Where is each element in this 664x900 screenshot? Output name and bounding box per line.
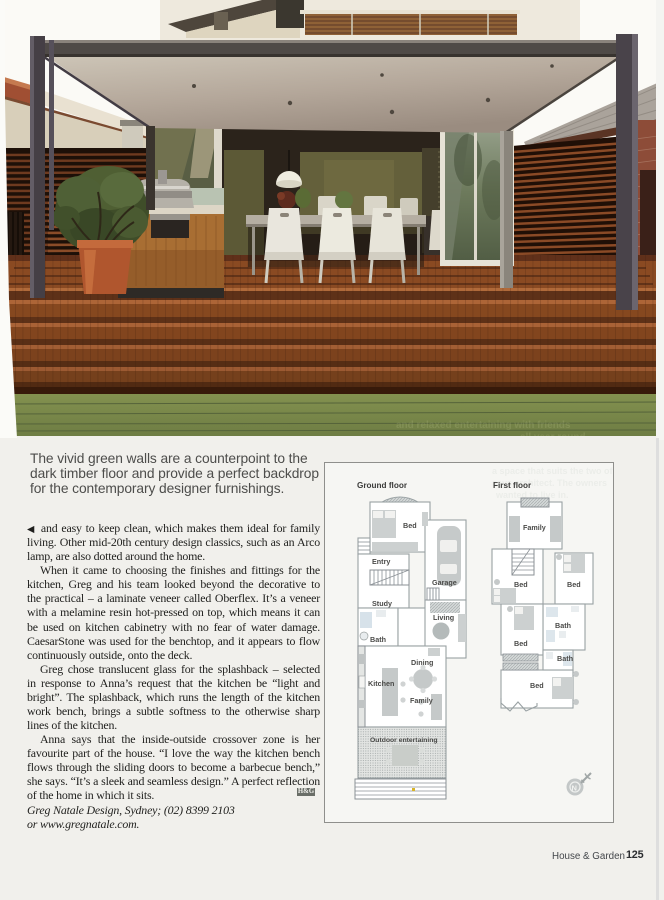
- svg-text:Bed: Bed: [514, 580, 528, 589]
- svg-text:Outdoor entertaining: Outdoor entertaining: [370, 737, 438, 744]
- svg-text:Bed: Bed: [514, 639, 528, 648]
- svg-text:Entry: Entry: [372, 557, 390, 566]
- svg-text:Study: Study: [372, 599, 392, 608]
- svg-text:Ground floor: Ground floor: [357, 481, 408, 490]
- svg-text:Dining: Dining: [411, 658, 433, 667]
- svg-text:First floor: First floor: [493, 481, 532, 490]
- svg-text:Bath: Bath: [370, 635, 386, 644]
- svg-text:Bed: Bed: [530, 681, 544, 690]
- svg-text:N: N: [572, 784, 577, 793]
- svg-text:Bath: Bath: [555, 621, 571, 630]
- svg-text:Bed: Bed: [567, 580, 581, 589]
- svg-text:and relaxed entertaining with: and relaxed entertaining with friends: [396, 420, 571, 431]
- svg-text:Kitchen: Kitchen: [368, 679, 394, 688]
- svg-text:Living: Living: [433, 613, 454, 622]
- svg-text:a space that suits the two of: a space that suits the two of: [492, 466, 614, 476]
- svg-text:Bed: Bed: [403, 521, 417, 530]
- svg-text:Family: Family: [410, 696, 433, 705]
- svg-text:Family: Family: [523, 523, 546, 532]
- svg-text:Bath: Bath: [557, 654, 573, 663]
- svg-text:Garage: Garage: [432, 578, 457, 587]
